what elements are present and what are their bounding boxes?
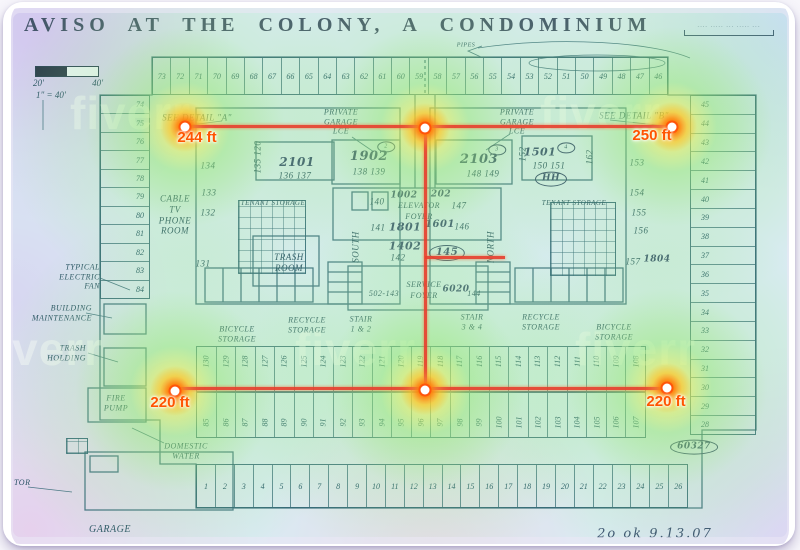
parking-stall: 2 [215,465,234,507]
parking-stall-number: 34 [701,308,709,317]
parking-stall: 72 [170,58,188,94]
parking-stall: 122 [352,347,372,391]
parking-stall-number: 130 [202,356,211,368]
parking-stall: 57 [446,58,464,94]
private-garage-left-label: PRIVATE GARAGE LCE [324,108,358,137]
parking-stall: 77 [101,150,149,168]
parking-stall: 1 [197,465,215,507]
unit-2101: 2101 [279,155,314,169]
trash-holding-label: TRASH HOLDING [47,343,86,362]
parking-stall-number: 40 [701,195,709,204]
parking-stall: 130 [197,347,216,391]
building-maintenance-label: BUILDING MAINTENANCE [32,303,92,322]
parking-stall: 87 [235,393,255,437]
parking-stall-number: 17 [504,482,512,491]
parking-stall-number: 108 [631,356,640,368]
parking-stall: 115 [489,347,509,391]
parking-stall: 60 [391,58,409,94]
parking-stall: 7 [309,465,328,507]
unit-1501: 1501 [524,145,557,158]
parking-stall-number: 74 [136,100,144,109]
parking-row-top-row: 7372717069686766656463626160595857565554… [152,57,668,95]
parking-stall: 4 [253,465,272,507]
garage-label: GARAGE [89,524,131,536]
plan-label: 1002 [390,191,417,202]
parking-stall: 21 [574,465,593,507]
parking-stall: 111 [567,347,587,391]
parking-stall: 35 [691,283,755,302]
handwritten-note-topright: -··- ···-· -·· ··-·· -·- [684,24,774,36]
parking-stall-number: 19 [542,482,550,491]
parking-stall: 83 [101,261,149,279]
parking-stall-number: 61 [378,72,386,81]
parking-stall-number: 38 [701,232,709,241]
parking-stall: 6 [290,465,309,507]
parking-stall-number: 35 [701,289,709,298]
parking-stall: 126 [274,347,294,391]
parking-stall-number: 87 [241,419,250,427]
parking-stall-number: 60 [397,72,405,81]
parking-stall-number: 29 [701,402,709,411]
parking-stall: 47 [630,58,648,94]
parking-row-right-col: 454443424140393837363534333231302928 [690,95,756,435]
elevator-foyer-label: ELEVATOR [398,201,440,211]
parking-stall: 120 [391,347,411,391]
plan-label: PIPES [457,42,476,49]
cable-tv-phone-room-label: CABLE TV PHONE ROOM [159,193,192,236]
parking-stall: 12 [404,465,423,507]
parking-stall-number: 127 [260,356,269,368]
parking-stall: 117 [450,347,470,391]
parking-stall-number: 104 [573,417,582,429]
parking-stall: 90 [294,393,314,437]
parking-stall-number: 42 [701,157,709,166]
parking-stall-number: 14 [448,482,456,491]
parking-stall: 96 [411,393,431,437]
parking-stall: 79 [101,187,149,205]
parking-stall-number: 7 [317,482,321,491]
parking-stall: 44 [691,114,755,133]
parking-stall: 38 [691,227,755,246]
parking-stall: 95 [391,393,411,437]
parking-stall: 80 [101,206,149,224]
distance-label-220ft-left: 220 ft [150,394,189,411]
parking-stall-number: 56 [470,72,478,81]
parking-stall: 32 [691,340,755,359]
parking-stall: 20 [555,465,574,507]
plan-label: 135 120 [253,141,264,174]
parking-stall-number: 64 [323,72,331,81]
domestic-water-label: DOMESTIC WATER [164,441,208,460]
parking-stall: 30 [691,377,755,396]
parking-stall-number: 53 [526,72,534,81]
parking-stall: 52 [538,58,556,94]
parking-stall-number: 39 [701,213,709,222]
plan-label: 144 [467,289,481,299]
parking-stall-number: 59 [415,72,423,81]
parking-stall: 119 [411,347,431,391]
handwritten-date-note: 2o ok 9.13.07 [597,527,713,542]
parking-stall: 89 [274,393,294,437]
parking-stall: 108 [625,347,645,391]
parking-stall-number: 32 [701,345,709,354]
parking-stall: 71 [189,58,207,94]
scale-right: 40' [92,78,103,88]
parking-stall: 101 [508,393,528,437]
parking-stall-number: 65 [305,72,313,81]
parking-stall-number: 62 [360,72,368,81]
parking-stall-number: 46 [654,72,662,81]
parking-stall-number: 15 [466,482,474,491]
trash-holding-box [104,348,146,386]
pipes-callout-curve [478,42,690,58]
parking-stall: 85 [197,393,216,437]
parking-stall: 92 [333,393,353,437]
parking-stall: 14 [442,465,461,507]
parking-stall-number: 85 [202,419,211,427]
parking-stall: 66 [281,58,299,94]
parking-stall-number: 8 [336,482,340,491]
parking-stall: 69 [226,58,244,94]
parking-stall-number: 96 [416,419,425,427]
parking-stall-number: 52 [544,72,552,81]
plan-label: HH [535,172,567,187]
parking-stall-number: 47 [636,72,644,81]
distance-label-250ft: 250 ft [632,127,671,144]
parking-stall-number: 77 [136,156,144,165]
parking-stall: 55 [483,58,501,94]
plan-label: 60327 [670,440,718,455]
parking-stall-number: 63 [342,72,350,81]
parking-stall: 10 [366,465,385,507]
parking-stall-number: 22 [599,482,607,491]
parking-stall-number: 10 [372,482,380,491]
parking-stall: 16 [479,465,498,507]
parking-stall-number: 4 [261,482,265,491]
parking-stall-number: 117 [455,356,464,367]
plan-label: 138 139 [353,167,386,178]
distance-label-220ft-right: 220 ft [646,393,685,410]
stair-34-label: STAIR 3 & 4 [461,312,484,331]
parking-stall-number: 50 [581,72,589,81]
parking-stall: 81 [101,224,149,242]
parking-stall-number: 84 [136,285,144,294]
parking-stall: 17 [498,465,517,507]
plan-label: 502-143 [369,289,399,299]
parking-stall-number: 94 [377,419,386,427]
parking-stall: 41 [691,170,755,189]
parking-stall: 100 [489,393,509,437]
parking-stall: 84 [101,280,149,298]
parking-stall-number: 116 [475,356,484,367]
parking-stall: 124 [313,347,333,391]
parking-stall: 125 [294,347,314,391]
hotspot-bottom-center [421,386,430,395]
parking-stall-number: 36 [701,270,709,279]
parking-stall-number: 48 [617,72,625,81]
floorplan-world: AVISO AT THE COLONY, A CONDOMINIUM [3,2,795,546]
parking-stall-number: 12 [410,482,418,491]
parking-stall-number: 97 [436,419,445,427]
parking-stall-number: 110 [592,356,601,367]
parking-stall: 127 [255,347,275,391]
plan-label: 131 [196,259,211,270]
parking-stall: 9 [347,465,366,507]
scanned-floorplan-card: AVISO AT THE COLONY, A CONDOMINIUM [3,2,795,546]
parking-stall: 98 [450,393,470,437]
plan-label: 136 137 [279,171,312,182]
parking-stall: 11 [385,465,404,507]
parking-stall: 26 [668,465,687,507]
plan-label: 1402 [389,239,422,252]
parking-stall: 114 [508,347,528,391]
parking-stall-number: 99 [475,419,484,427]
parking-stall: 46 [649,58,667,94]
plan-label: 152 [518,147,529,162]
parking-row-left-col: 7475767778798081828384 [100,95,150,299]
parking-stall: 67 [262,58,280,94]
parking-stall-number: 105 [592,417,601,429]
parking-stall-number: 43 [701,138,709,147]
parking-stall: 45 [691,96,755,114]
parking-stall-number: 26 [674,482,682,491]
parking-stall: 58 [428,58,446,94]
parking-stall-number: 55 [489,72,497,81]
parking-stall-number: 122 [358,356,367,368]
parking-stall: 61 [373,58,391,94]
plan-label: 146 [455,222,470,233]
measure-line-vertical [424,128,427,390]
plan-label: 2 [377,141,395,152]
parking-stall: 93 [352,393,372,437]
plan-label: 132 [201,208,216,219]
plan-label: 155 [632,208,647,219]
parking-stall: 31 [691,359,755,378]
parking-stall: 88 [255,393,275,437]
parking-stall-number: 118 [436,356,445,367]
parking-stall: 29 [691,396,755,415]
parking-stall-number: 33 [701,326,709,335]
plan-label: 147 [452,201,467,212]
trash-room-label: TRASH ROOM [274,252,304,274]
parking-stall-number: 58 [434,72,442,81]
parking-stall: 68 [244,58,262,94]
parking-stall: 78 [101,169,149,187]
parking-stall: 15 [460,465,479,507]
plan-label: 1804 [643,255,670,266]
plan-label: 134 [201,161,216,172]
parking-stall-number: 112 [553,356,562,367]
scale-left: 20' [33,78,44,88]
parking-stall-number: 91 [319,419,328,427]
parking-stall-number: 111 [573,356,582,367]
plan-label: 133 [202,188,217,199]
stair-34-box [476,262,510,304]
parking-stall-number: 25 [655,482,663,491]
see-detail-b-label: SEE DETAIL "B" [599,111,669,122]
parking-stall: 48 [612,58,630,94]
parking-stall: 97 [430,393,450,437]
parking-stall-number: 81 [136,229,144,238]
parking-stall: 73 [153,58,170,94]
parking-stall: 3 [234,465,253,507]
parking-stall: 75 [101,113,149,131]
parking-stall: 82 [101,243,149,261]
maintenance-box [104,304,146,334]
small-stair-icon [66,438,88,454]
parking-stall: 5 [272,465,291,507]
tenant-storage-right-grid [550,202,616,276]
measure-line-branch [425,256,505,259]
parking-stall-number: 5 [280,482,284,491]
parking-stall: 106 [606,393,626,437]
parking-stall-number: 71 [194,72,202,81]
parking-stall: 76 [101,132,149,150]
parking-stall-number: 125 [299,356,308,368]
parking-stall: 105 [586,393,606,437]
scale-marks: 20' 40' [33,78,103,88]
blueprint-layer: AVISO AT THE COLONY, A CONDOMINIUM [3,2,795,546]
parking-stall-number: 107 [631,417,640,429]
plan-label: 157 [626,257,641,268]
parking-stall-number: 11 [391,482,398,491]
stair-12-box [328,262,362,304]
scale-ratio: 1" = 40' [36,90,66,100]
parking-stall-number: 24 [636,482,644,491]
plan-label: 140 [370,197,385,208]
plan-label: SOUTH [351,231,362,263]
parking-stall: 70 [207,58,225,94]
tenant-storage-left-label: TENANT STORAGE [241,199,306,207]
parking-stall-number: 20 [561,482,569,491]
parking-stall-number: 2 [223,482,227,491]
parking-stall-number: 51 [562,72,570,81]
parking-stall-number: 126 [280,356,289,368]
parking-stall-number: 90 [299,419,308,427]
parking-stall-number: 73 [158,72,166,81]
parking-stall-number: 115 [494,356,503,367]
parking-stall: 22 [593,465,612,507]
bicycle-storage-left-label: BICYCLE STORAGE [218,324,256,343]
parking-stall-number: 88 [260,419,269,427]
parking-stall-number: 123 [338,356,347,368]
parking-stall: 113 [528,347,548,391]
parking-stall: 40 [691,189,755,208]
parking-stall: 62 [354,58,372,94]
parking-stall: 123 [333,347,353,391]
parking-stall-number: 101 [514,417,523,429]
parking-stall: 128 [235,347,255,391]
parking-stall-number: 100 [494,417,503,429]
parking-stall-number: 70 [213,72,221,81]
parking-row-mid-upper: 1301291281271261251241231221211201191181… [196,346,646,392]
recycle-storage-right-label: RECYCLE STORAGE [522,312,560,331]
parking-stall: 104 [567,393,587,437]
parking-stall: 25 [649,465,668,507]
parking-stall: 28 [691,415,755,434]
plan-label: 4 [557,142,575,153]
parking-stall: 110 [586,347,606,391]
parking-stall: 39 [691,208,755,227]
plan-label: 1801 [389,220,422,233]
parking-stall-number: 45 [701,100,709,109]
parking-stall-number: 18 [523,482,531,491]
plan-label: 3 [488,144,506,155]
parking-stall: 102 [528,393,548,437]
parking-stall-number: 23 [618,482,626,491]
tenant-storage-right-label: TENANT STORAGE [542,199,607,207]
plan-label: TOR [14,478,30,488]
parking-stall-number: 13 [429,482,437,491]
parking-stall-number: 120 [397,356,406,368]
parking-stall-number: 54 [507,72,515,81]
parking-stall-number: 69 [231,72,239,81]
parking-stall: 23 [612,465,631,507]
distance-label-244ft: 244 ft [177,129,216,146]
parking-stall-number: 109 [612,356,621,368]
parking-row-bottom-row: 1234567891011121314151617181920212223242… [196,464,688,508]
parking-stall: 59 [409,58,427,94]
plan-label: 162 [585,150,596,165]
parking-stall: 86 [216,393,236,437]
parking-stall-number: 93 [358,419,367,427]
parking-stall: 50 [575,58,593,94]
parking-stall: 116 [469,347,489,391]
parking-stall: 103 [547,393,567,437]
parking-stall-number: 95 [397,419,406,427]
parking-stall-number: 68 [250,72,258,81]
parking-stall-number: 37 [701,251,709,260]
parking-stall: 51 [557,58,575,94]
stair-12-label: STAIR 1 & 2 [350,314,373,333]
parking-stall: 56 [465,58,483,94]
see-detail-a-label: SEE DETAIL "A" [162,113,232,124]
parking-stall-number: 49 [599,72,607,81]
parking-stall-number: 76 [136,137,144,146]
parking-stall-number: 121 [377,356,386,368]
parking-stall-number: 6 [298,482,302,491]
parking-stall-number: 92 [338,419,347,427]
plan-label: 141 [371,223,386,234]
parking-stall: 121 [372,347,392,391]
parking-stall-number: 31 [701,364,709,373]
parking-stall-number: 113 [534,356,543,367]
parking-stall-number: 21 [580,482,588,491]
note-bracket [684,30,774,36]
parking-stall: 43 [691,133,755,152]
parking-stall-number: 106 [612,417,621,429]
parking-stall-number: 86 [221,419,230,427]
plan-label: 202 [431,190,451,201]
private-garage-right-label: PRIVATE GARAGE LCE [500,108,534,137]
parking-stall: 65 [299,58,317,94]
parking-stall-number: 44 [701,119,709,128]
parking-stall: 36 [691,264,755,283]
parking-stall: 64 [318,58,336,94]
parking-row-mid-lower: 8586878889909192939495969798991001011021… [196,392,646,438]
parking-stall-number: 78 [136,174,144,183]
parking-stall: 54 [501,58,519,94]
parking-stall-number: 128 [241,356,250,368]
parking-stall: 18 [517,465,536,507]
parking-stall: 53 [520,58,538,94]
parking-stall-number: 41 [701,176,709,185]
parking-stall: 129 [216,347,236,391]
plan-label: 1601 [425,219,455,231]
parking-stall-number: 72 [176,72,184,81]
parking-stall-number: 3 [242,482,246,491]
parking-stall-number: 66 [286,72,294,81]
